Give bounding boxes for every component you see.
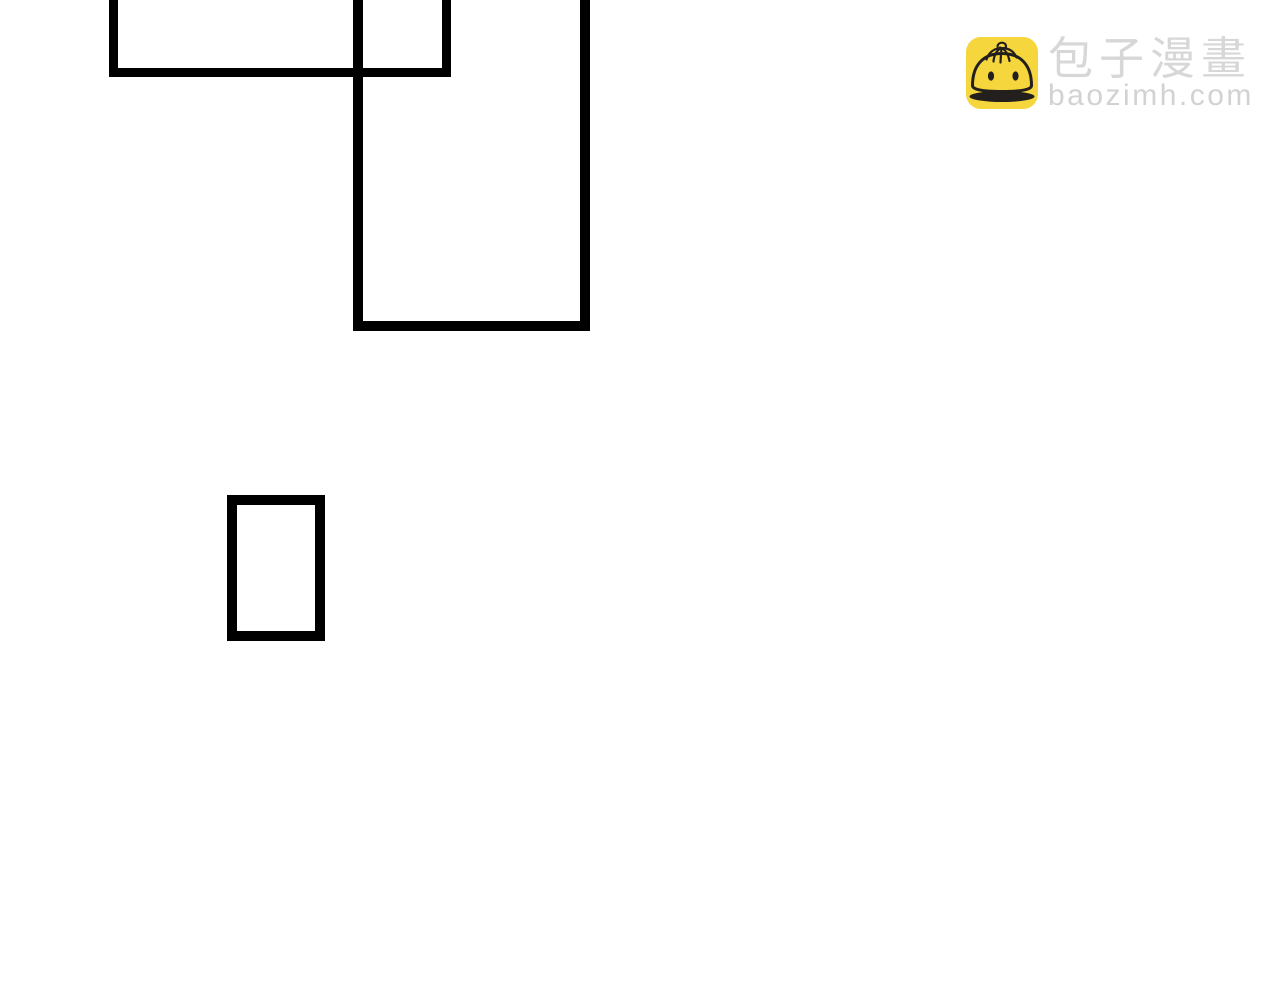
site-url-text: baozimh.com [1048, 81, 1254, 111]
watermark-text-block: 包子漫畫 baozimh.com [1048, 37, 1254, 111]
comic-page-canvas: 包子漫畫 baozimh.com [0, 0, 1280, 1000]
baozi-bun-icon [966, 37, 1038, 109]
brand-name-text: 包子漫畫 [1048, 37, 1254, 81]
baozimh-watermark: 包子漫畫 baozimh.com [966, 37, 1254, 111]
comic-panel-small [227, 495, 325, 641]
comic-panel-tall [353, 0, 590, 331]
